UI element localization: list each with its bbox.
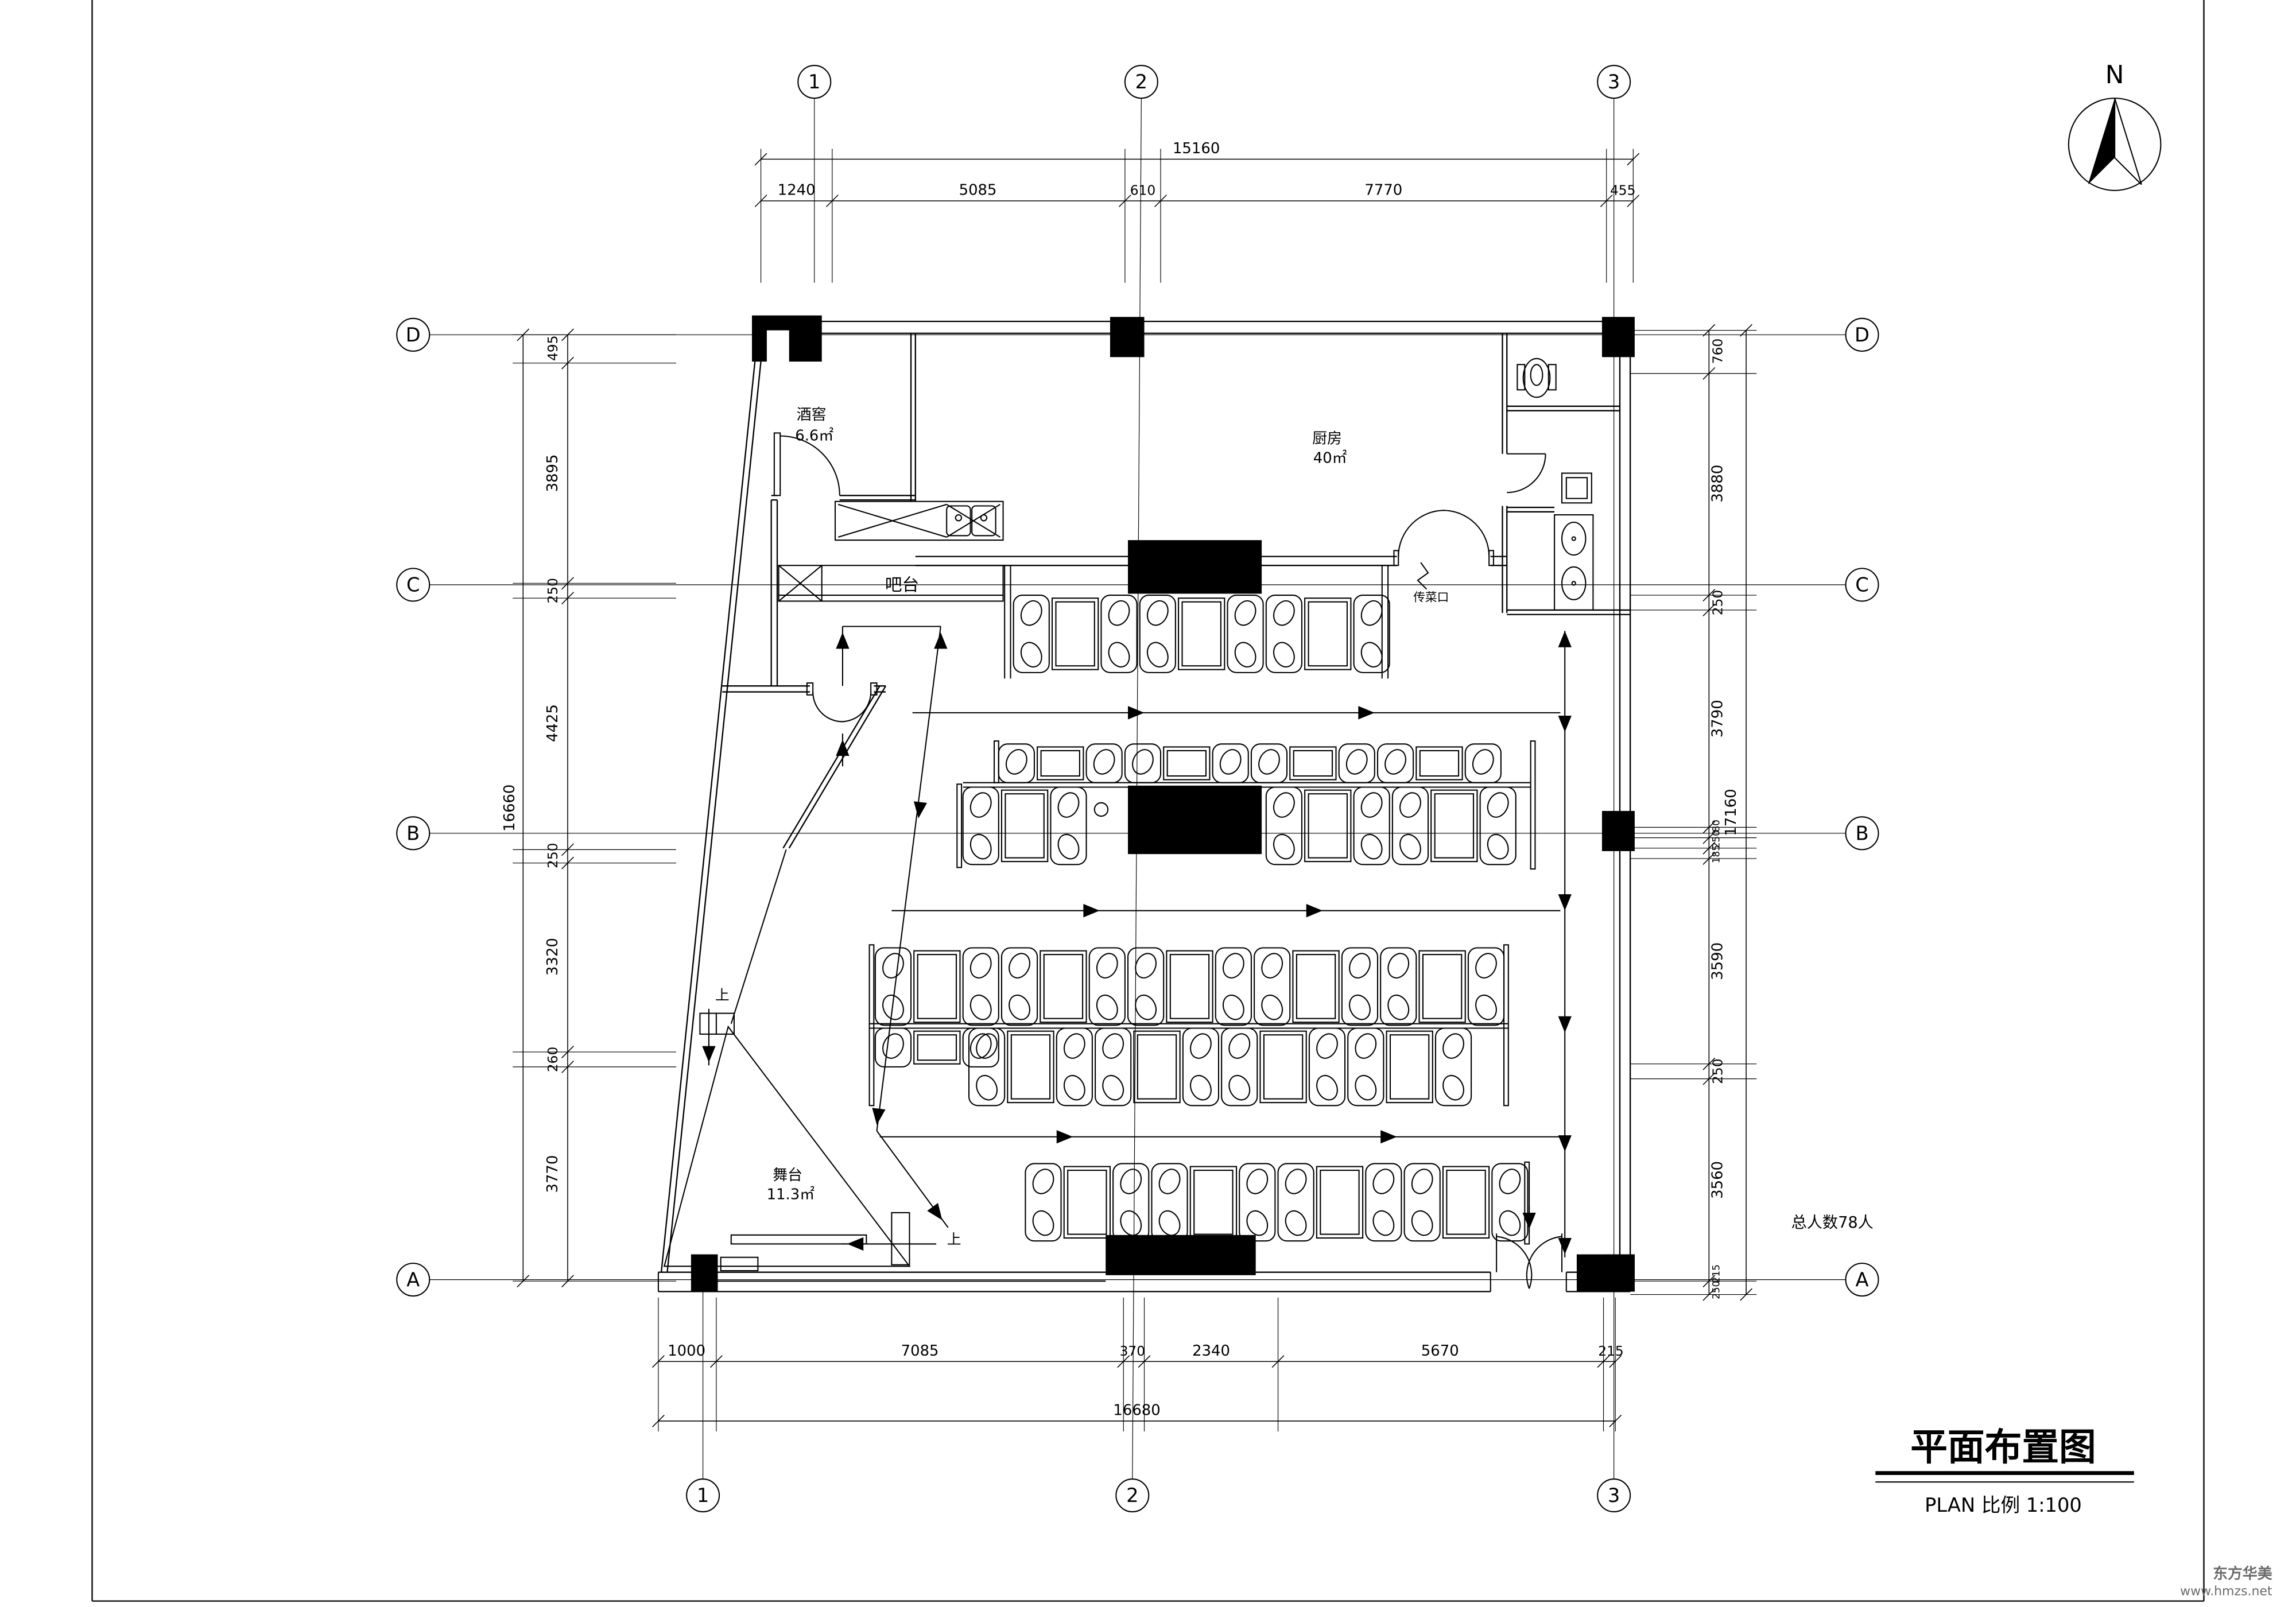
sofa-cushion-icon bbox=[1472, 992, 1500, 1023]
sofa-cushion-icon bbox=[879, 992, 907, 1023]
grid-bubble-right-A: A bbox=[1855, 1268, 1868, 1291]
booth-sofa bbox=[875, 948, 911, 1025]
booth-sofa bbox=[1309, 1028, 1345, 1105]
sofa-cushion-icon bbox=[1282, 1208, 1310, 1239]
booth-table bbox=[1166, 951, 1212, 1022]
booth-sofa bbox=[1393, 787, 1428, 864]
drawing-sheet: { "title_block": { "title": "平面布置图", "sc… bbox=[0, 0, 2296, 1607]
flow-line bbox=[877, 626, 941, 1131]
sofa-cushion-icon bbox=[1258, 950, 1286, 981]
sofa-cushion-icon bbox=[1143, 639, 1172, 670]
booth-table bbox=[1163, 747, 1209, 779]
sofa-cushion-icon bbox=[1358, 789, 1386, 820]
toilet-icon bbox=[1517, 359, 1556, 397]
sofa-cushion-icon bbox=[967, 789, 995, 820]
dim-left-3: 4425 bbox=[544, 704, 561, 742]
flow-arrow-icon bbox=[1358, 706, 1374, 719]
booth-table bbox=[914, 951, 960, 1022]
sofa-cushion-icon bbox=[1370, 1208, 1398, 1239]
sofa-cushion-icon bbox=[1231, 639, 1259, 670]
booth-sofa bbox=[1480, 787, 1516, 864]
booth-sofa bbox=[1348, 1028, 1383, 1105]
wine-cellar-label: 酒窖 bbox=[797, 406, 827, 424]
kitchen-label: 厨房 bbox=[1312, 430, 1342, 448]
pass-leader bbox=[1418, 562, 1428, 589]
sofa-cushion-icon bbox=[1352, 1030, 1380, 1061]
sofa-cushion-icon bbox=[1408, 1208, 1436, 1239]
kitchen-counter bbox=[835, 502, 1003, 540]
sofa-cushion-icon bbox=[1352, 1072, 1380, 1103]
sofa-cushion-icon bbox=[1243, 1166, 1271, 1197]
booth-table bbox=[1431, 790, 1477, 861]
sofa-cushion-icon bbox=[967, 950, 995, 981]
booth-table-inner bbox=[1044, 954, 1083, 1018]
dim-top-2: 610 bbox=[1130, 183, 1155, 199]
booth-sofa bbox=[963, 948, 999, 1025]
flow-arrow-icon bbox=[912, 801, 927, 819]
booth-sofa bbox=[1095, 1028, 1131, 1105]
booth-sofa bbox=[1354, 787, 1390, 864]
flow-arrow-icon bbox=[1558, 1016, 1572, 1033]
kitchen-area: 40㎡ bbox=[1313, 449, 1347, 467]
sofa-cushion-icon bbox=[1484, 831, 1512, 862]
booth-table bbox=[1040, 951, 1086, 1022]
stage-label: 舞台 bbox=[773, 1167, 802, 1184]
sofa-cushion-icon bbox=[1060, 1030, 1088, 1061]
flow-arrow-icon bbox=[927, 1203, 948, 1224]
booth-sofa bbox=[1002, 948, 1037, 1025]
booth-sofa bbox=[1128, 948, 1163, 1025]
booth-table-inner bbox=[1264, 1035, 1302, 1098]
drawing-scale: PLAN 比例 1:100 bbox=[1925, 1494, 2082, 1516]
sofa-cushion-icon bbox=[1255, 746, 1283, 777]
booth-table bbox=[1134, 1031, 1180, 1103]
grid-bubble-bottom-2: 2 bbox=[1126, 1484, 1138, 1507]
sofa-cushion-icon bbox=[1002, 746, 1030, 777]
booth-sofa bbox=[1025, 1163, 1061, 1241]
flow-arrow-icon bbox=[1306, 904, 1322, 917]
sofa-cushion-icon bbox=[1155, 1166, 1184, 1197]
booth-table bbox=[1002, 790, 1048, 861]
sofa-cushion-icon bbox=[1029, 1208, 1057, 1239]
booth-sofa bbox=[1151, 1163, 1187, 1241]
stage-area: 11.3㎡ bbox=[767, 1186, 815, 1204]
sofa-cushion-icon bbox=[1313, 1072, 1341, 1103]
dim-left-4: 250 bbox=[545, 843, 561, 868]
dim-left-total: 16660 bbox=[501, 785, 518, 832]
dim-left-6: 260 bbox=[545, 1047, 561, 1072]
dim-right-9: 3560 bbox=[1709, 1161, 1727, 1199]
north-label: N bbox=[2105, 60, 2124, 90]
sofa-cushion-icon bbox=[1225, 1030, 1254, 1061]
booth-sofa bbox=[1266, 787, 1302, 864]
booth-sofa bbox=[1216, 948, 1251, 1025]
sofa-cushion-icon bbox=[1496, 1166, 1524, 1197]
grid-bubble-right-D: D bbox=[1855, 324, 1870, 346]
sofa-cushion-icon bbox=[1358, 831, 1386, 862]
flow-arrow-icon bbox=[1558, 1135, 1572, 1152]
watermark-name: 东方华美 bbox=[2213, 1565, 2272, 1583]
booth-table-inner bbox=[1168, 751, 1206, 776]
booth-sofa bbox=[1492, 1163, 1527, 1241]
booth-table-inner bbox=[1041, 751, 1080, 776]
stage-outline bbox=[664, 1014, 909, 1271]
dim-right-3: 3790 bbox=[1709, 700, 1727, 737]
flow-arrow-icon bbox=[1128, 706, 1144, 719]
booth-table bbox=[1007, 1031, 1053, 1103]
booth-table-inner bbox=[1056, 602, 1094, 666]
dim-left-7: 3770 bbox=[544, 1155, 561, 1193]
booth-sofa bbox=[1140, 595, 1176, 673]
booth-table-inner bbox=[1170, 954, 1209, 1018]
sofa-cushion-icon bbox=[1396, 831, 1424, 862]
structural-columns bbox=[691, 316, 1635, 1292]
sofa-cushion-icon bbox=[1186, 1072, 1215, 1103]
sofa-cushion-icon bbox=[879, 1030, 907, 1061]
booth-table bbox=[1290, 747, 1336, 779]
sofa-cushion-icon bbox=[1370, 1166, 1398, 1197]
sofa-cushion-icon bbox=[1093, 950, 1121, 981]
booth-sofa bbox=[1101, 595, 1137, 673]
sofa-cushion-icon bbox=[1484, 789, 1512, 820]
sofa-cushion-icon bbox=[1186, 1030, 1215, 1061]
grid-bubble-top-1: 1 bbox=[808, 71, 820, 93]
grid-bubble-bottom-3: 3 bbox=[1608, 1484, 1620, 1507]
dim-right-0: 760 bbox=[1711, 339, 1726, 364]
booth-table-inner bbox=[918, 1035, 956, 1060]
sofa-cushion-icon bbox=[1090, 746, 1118, 777]
booth-sofa bbox=[1436, 1028, 1471, 1105]
dim-left-5: 3320 bbox=[544, 938, 561, 976]
booth-table bbox=[1387, 1031, 1433, 1103]
dim-right-11: 250 bbox=[1710, 1281, 1721, 1299]
north-arrow-icon: N bbox=[2069, 60, 2161, 191]
booth-table-inner bbox=[1309, 794, 1347, 857]
booth-sofa bbox=[1405, 1163, 1440, 1241]
grid-bubble-bottom-1: 1 bbox=[697, 1484, 709, 1507]
dim-left-2: 250 bbox=[545, 578, 561, 603]
dim-right-1: 3880 bbox=[1709, 465, 1727, 503]
dim-top-3: 7770 bbox=[1364, 182, 1402, 199]
sofa-cushion-icon bbox=[1231, 597, 1259, 628]
sofa-cushion-icon bbox=[1313, 1030, 1341, 1061]
sofa-cushion-icon bbox=[1017, 639, 1045, 670]
flow-arrow-icon bbox=[1558, 716, 1572, 732]
drawing-title: 平面布置图 bbox=[1910, 1426, 2096, 1469]
booth-sofa bbox=[1380, 948, 1416, 1025]
booth-sofa bbox=[1057, 1028, 1092, 1105]
booth-sofa bbox=[1342, 948, 1378, 1025]
sofa-cushion-icon bbox=[1270, 639, 1298, 670]
dim-left-0: 495 bbox=[545, 335, 561, 360]
stair-up-label-2: 上 bbox=[947, 1231, 961, 1247]
title-block: 平面布置图 PLAN 比例 1:100 bbox=[1875, 1426, 2134, 1516]
booth-sofa bbox=[1221, 1028, 1257, 1105]
booth-table-inner bbox=[1309, 602, 1347, 666]
booth-table bbox=[1443, 1167, 1489, 1238]
sofa-cushion-icon bbox=[1054, 789, 1083, 820]
booth-table bbox=[1305, 790, 1351, 861]
dim-right-2: 250 bbox=[1711, 590, 1726, 615]
flow-arrow-icon bbox=[934, 632, 947, 649]
dim-left-1: 3895 bbox=[544, 454, 561, 492]
booth-table-inner bbox=[1182, 602, 1221, 666]
sofa-cushion-icon bbox=[1270, 789, 1298, 820]
booth-table bbox=[1178, 598, 1224, 669]
sofa-cushion-icon bbox=[1472, 950, 1500, 981]
flow-arrow-icon bbox=[836, 740, 849, 756]
sofa-cushion-icon bbox=[1408, 1166, 1436, 1197]
booth-sofa bbox=[1354, 595, 1390, 673]
sofa-cushion-icon bbox=[1270, 831, 1298, 862]
sofa-cushion-icon bbox=[1132, 992, 1160, 1023]
booth-sofa bbox=[1254, 948, 1290, 1025]
sofa-cushion-icon bbox=[1439, 1030, 1467, 1061]
sofa-cushion-icon bbox=[1225, 1072, 1254, 1103]
booth-sofa bbox=[1113, 1163, 1149, 1241]
sofa-cushion-icon bbox=[1219, 950, 1247, 981]
sofa-cushion-icon bbox=[1017, 597, 1045, 628]
booth-sofa bbox=[1266, 595, 1302, 673]
dim-bottom-4: 5670 bbox=[1421, 1342, 1459, 1360]
sofa-cushion-icon bbox=[1282, 1166, 1310, 1197]
sofa-cushion-icon bbox=[1105, 639, 1133, 670]
grid-bubble-right-C: C bbox=[1855, 574, 1868, 596]
booth-table bbox=[1190, 1167, 1236, 1238]
sofa-cushion-icon bbox=[1060, 1072, 1088, 1103]
sofa-cushion-icon bbox=[1270, 597, 1298, 628]
sofa-cushion-icon bbox=[1243, 1208, 1271, 1239]
booth-table-inner bbox=[1011, 1035, 1050, 1098]
sofa-cushion-icon bbox=[1496, 1208, 1524, 1239]
dim-bottom-1: 7085 bbox=[901, 1342, 939, 1360]
booth-sofa bbox=[1089, 948, 1125, 1025]
capacity-note: 总人数78人 bbox=[1791, 1214, 1874, 1232]
booth-table bbox=[1416, 747, 1462, 779]
flow-arrow-icon bbox=[1558, 631, 1572, 647]
sofa-cushion-icon bbox=[967, 992, 995, 1023]
watermark-url: www.hmzs.net bbox=[2180, 1584, 2272, 1598]
dim-right-total: 17160 bbox=[1723, 789, 1740, 836]
booth-table-inner bbox=[1005, 794, 1044, 857]
grid-bubble-left-B: B bbox=[406, 822, 420, 844]
flow-arrow-icon bbox=[1558, 894, 1572, 911]
flow-arrow-icon bbox=[702, 1046, 715, 1063]
flow-arrow-icon bbox=[1057, 1130, 1073, 1143]
booth-table-inner bbox=[1068, 1170, 1106, 1234]
booth-table bbox=[1419, 951, 1465, 1022]
dim-bottom-0: 1000 bbox=[668, 1342, 705, 1360]
watermark: 东方华美 www.hmzs.net bbox=[2180, 1565, 2272, 1599]
sofa-cushion-icon bbox=[973, 1072, 1001, 1103]
booth-table bbox=[1317, 1167, 1363, 1238]
sofa-cushion-icon bbox=[1439, 1072, 1467, 1103]
booth-sofa bbox=[1228, 595, 1263, 673]
booth-sofa bbox=[1183, 1028, 1219, 1105]
flow-arrow-icon bbox=[1558, 1238, 1572, 1255]
dim-top-total: 15160 bbox=[1173, 140, 1220, 157]
sofa-cushion-icon bbox=[1029, 1166, 1057, 1197]
sofa-cushion-icon bbox=[1216, 746, 1244, 777]
sofa-cushion-icon bbox=[1117, 1166, 1145, 1197]
flow-arrow-icon bbox=[870, 1108, 886, 1125]
sofa-cushion-icon bbox=[1054, 831, 1083, 862]
booth-table bbox=[1052, 598, 1098, 669]
dim-bottom-total: 16680 bbox=[1113, 1402, 1160, 1419]
booth-sofa bbox=[1278, 1163, 1314, 1241]
sofa-cushion-icon bbox=[1155, 1208, 1184, 1239]
booth-table bbox=[1260, 1031, 1306, 1103]
floor-plan-canvas: 1 2 3 1 2 3 D C B A D C B A 15160 1240 5… bbox=[0, 0, 2296, 1607]
sofa-cushion-icon bbox=[1093, 992, 1121, 1023]
wc-sink-icon bbox=[1562, 473, 1592, 503]
grid-bubble-top-2: 2 bbox=[1135, 71, 1147, 93]
grid-bubble-left-C: C bbox=[406, 574, 420, 596]
booth-table-inner bbox=[1446, 1170, 1485, 1234]
dim-right-6: 185 bbox=[1710, 845, 1721, 863]
dim-top-4: 455 bbox=[1610, 183, 1635, 199]
dim-right-7: 3590 bbox=[1709, 942, 1727, 980]
booth-sofa bbox=[1239, 1163, 1275, 1241]
sofa-cushion-icon bbox=[1099, 1072, 1127, 1103]
bar-label: 吧台 bbox=[885, 575, 920, 595]
sofa-cushion-icon bbox=[1105, 597, 1133, 628]
booth-table bbox=[1293, 951, 1339, 1022]
sofa-cushion-icon bbox=[1384, 950, 1413, 981]
flow-arrow-icon bbox=[836, 632, 849, 649]
dim-right-8: 250 bbox=[1711, 1058, 1726, 1084]
stair-up-label-1: 上 bbox=[715, 987, 730, 1003]
wash-basins-icon bbox=[1554, 515, 1593, 610]
sofa-cushion-icon bbox=[879, 950, 907, 981]
grid-bubble-left-A: A bbox=[406, 1268, 420, 1291]
booth-sofa bbox=[1366, 1163, 1401, 1241]
booth-table-inner bbox=[1420, 751, 1459, 776]
booth-table-inner bbox=[1294, 751, 1332, 776]
booth-table bbox=[1037, 747, 1083, 779]
booth-table-inner bbox=[1138, 1035, 1176, 1098]
booth-table-inner bbox=[1435, 794, 1473, 857]
dim-bottom-3: 2340 bbox=[1192, 1342, 1230, 1360]
booth-table-inner bbox=[1297, 954, 1335, 1018]
booth-table-inner bbox=[1390, 1035, 1429, 1098]
booth-sofa bbox=[1014, 595, 1049, 673]
booth-table bbox=[914, 1031, 960, 1064]
booth-table bbox=[1064, 1167, 1110, 1238]
sofa-cushion-icon bbox=[1005, 950, 1033, 981]
sofa-cushion-icon bbox=[1384, 992, 1413, 1023]
grid-bubble-top-3: 3 bbox=[1608, 71, 1620, 93]
booth-sofa bbox=[1050, 787, 1086, 864]
flow-arrow-icon bbox=[847, 1237, 863, 1251]
booth-table-inner bbox=[1194, 1170, 1232, 1234]
sofa-cushion-icon bbox=[1345, 950, 1374, 981]
wine-cellar-area: 6.6㎡ bbox=[795, 427, 833, 444]
sofa-cushion-icon bbox=[1258, 992, 1286, 1023]
booth-table bbox=[1305, 598, 1351, 669]
flow-arrow-icon bbox=[1380, 1130, 1397, 1143]
sofa-cushion-icon bbox=[1345, 992, 1374, 1023]
grid-bubble-left-D: D bbox=[406, 324, 421, 346]
sofa-cushion-icon bbox=[1343, 746, 1371, 777]
pass-hatch-label: 传菜口 bbox=[1413, 590, 1449, 604]
sofa-cushion-icon bbox=[1469, 746, 1497, 777]
dim-top-1: 5085 bbox=[959, 182, 997, 199]
sofa-cushion-icon bbox=[1396, 789, 1424, 820]
sofa-cushion-icon bbox=[1099, 1030, 1127, 1061]
flow-arrow-icon bbox=[1083, 904, 1099, 917]
sofa-cushion-icon bbox=[1219, 992, 1247, 1023]
booth-sofa bbox=[1468, 948, 1504, 1025]
sofa-cushion-icon bbox=[1382, 746, 1410, 777]
sofa-cushion-icon bbox=[1128, 746, 1157, 777]
sofa-cushion-icon bbox=[1005, 992, 1033, 1023]
grid-bubble-right-B: B bbox=[1855, 822, 1868, 844]
booth-table-inner bbox=[1320, 1170, 1359, 1234]
booth-sofa bbox=[963, 787, 999, 864]
dim-right-10: 215 bbox=[1710, 1264, 1721, 1283]
booth-table-inner bbox=[1423, 954, 1461, 1018]
sofa-cushion-icon bbox=[1143, 597, 1172, 628]
booth-table-inner bbox=[918, 954, 956, 1018]
dim-top-0: 1240 bbox=[778, 182, 816, 199]
sofa-cushion-icon bbox=[967, 831, 995, 862]
sofa-cushion-icon bbox=[1117, 1208, 1145, 1239]
